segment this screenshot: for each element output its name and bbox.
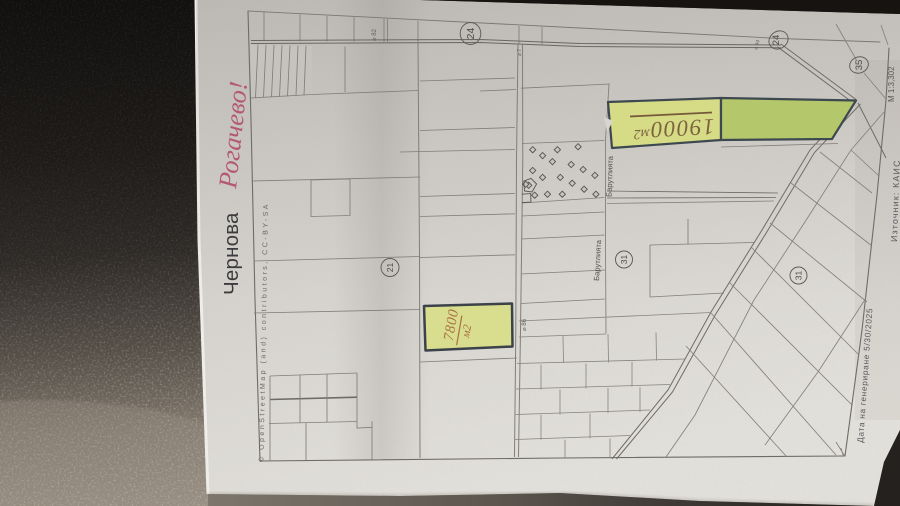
svg-text:Барутлията: Барутлията (605, 155, 615, 197)
svg-text:24: 24 (771, 35, 782, 46)
svg-text:⌀ 7: ⌀ 7 (517, 49, 523, 56)
svg-text:Източник: КАИС: Източник: КАИС (889, 159, 900, 242)
svg-text:21: 21 (385, 263, 395, 273)
svg-text:⌀ 82: ⌀ 82 (372, 28, 378, 41)
svg-text:Чернова: Чернова (220, 212, 243, 295)
svg-text:35: 35 (854, 60, 865, 71)
svg-text:М 1:3,302: М 1:3,302 (887, 66, 896, 102)
svg-text:м2: м2 (460, 323, 474, 339)
svg-text:24: 24 (465, 28, 477, 40)
svg-text:31: 31 (794, 271, 804, 281)
svg-text:31: 31 (619, 255, 629, 265)
svg-text:⌀ 86: ⌀ 86 (522, 318, 528, 331)
